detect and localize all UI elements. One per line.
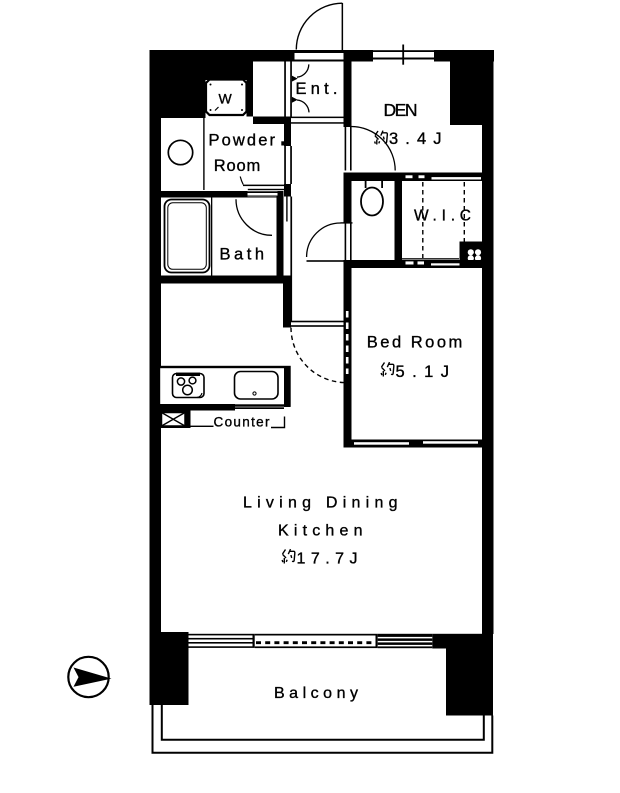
svg-text:Bed Room: Bed Room xyxy=(367,334,463,352)
svg-text:Counter: Counter xyxy=(214,414,271,429)
svg-text:Powder: Powder xyxy=(209,132,276,150)
svg-text:W.I.C: W.I.C xyxy=(414,208,471,225)
svg-text:Room: Room xyxy=(214,157,260,175)
svg-text:Bath: Bath xyxy=(220,245,265,263)
svg-text:Living Dining: Living Dining xyxy=(243,494,398,511)
svg-text:DEN: DEN xyxy=(384,100,418,120)
svg-text:W: W xyxy=(219,91,233,107)
